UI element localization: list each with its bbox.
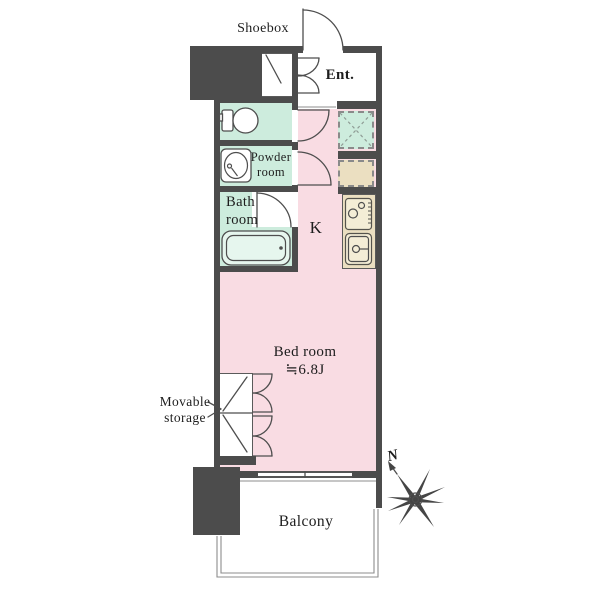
wall-above-toilet bbox=[214, 97, 298, 103]
entrance-label: Ent. bbox=[320, 66, 360, 84]
kitchen-unit bbox=[342, 194, 376, 269]
refrigerator-space bbox=[338, 160, 374, 187]
wall-sanitary-right-a bbox=[292, 46, 298, 110]
wall-bath-bedroom bbox=[214, 266, 298, 272]
wall-right bbox=[376, 46, 382, 508]
movable-storage-cabinet bbox=[218, 373, 253, 457]
wall-sanitary-right-b bbox=[292, 142, 298, 150]
bedroom-label: Bed room ≒6.8J bbox=[250, 343, 360, 380]
wall-sanitary-right-c bbox=[292, 185, 298, 192]
wall-powder-bath bbox=[214, 186, 292, 192]
wall-left bbox=[214, 97, 220, 467]
powder-room-label: Powder room bbox=[247, 150, 295, 181]
wall-sanitary-right-d bbox=[292, 227, 298, 272]
floorplan: Shoebox Ent. Powder room Bath room K Bed… bbox=[0, 0, 600, 600]
wall-top-left-block bbox=[190, 46, 262, 100]
shoebox-label: Shoebox bbox=[232, 20, 294, 37]
wall-toilet-powder bbox=[214, 140, 292, 146]
wall-under-entrance bbox=[337, 101, 382, 109]
bath-room-label: Bath room bbox=[226, 194, 270, 229]
bedroom-size: ≒6.8J bbox=[250, 361, 360, 379]
entrance-door-swing bbox=[303, 9, 343, 50]
wall-under-fridge bbox=[338, 187, 376, 194]
balcony-label: Balcony bbox=[270, 513, 342, 532]
washing-machine-space bbox=[338, 111, 374, 149]
shoebox-cabinet bbox=[260, 53, 293, 97]
movable-storage-label: Movable storage bbox=[158, 394, 212, 427]
bedroom-name: Bed room bbox=[250, 343, 360, 361]
wall-under-washing bbox=[338, 151, 376, 159]
wall-bedroom-bottom-left bbox=[240, 471, 258, 478]
wall-under-storage bbox=[214, 456, 256, 465]
wall-bottom-left-block bbox=[193, 467, 240, 535]
balcony-window bbox=[258, 471, 352, 478]
north-label: N bbox=[381, 445, 405, 468]
wall-bedroom-bottom-right bbox=[352, 471, 376, 478]
toilet-room-floor bbox=[220, 103, 292, 140]
kitchen-label: K bbox=[304, 218, 328, 239]
compass-rose bbox=[387, 461, 445, 527]
